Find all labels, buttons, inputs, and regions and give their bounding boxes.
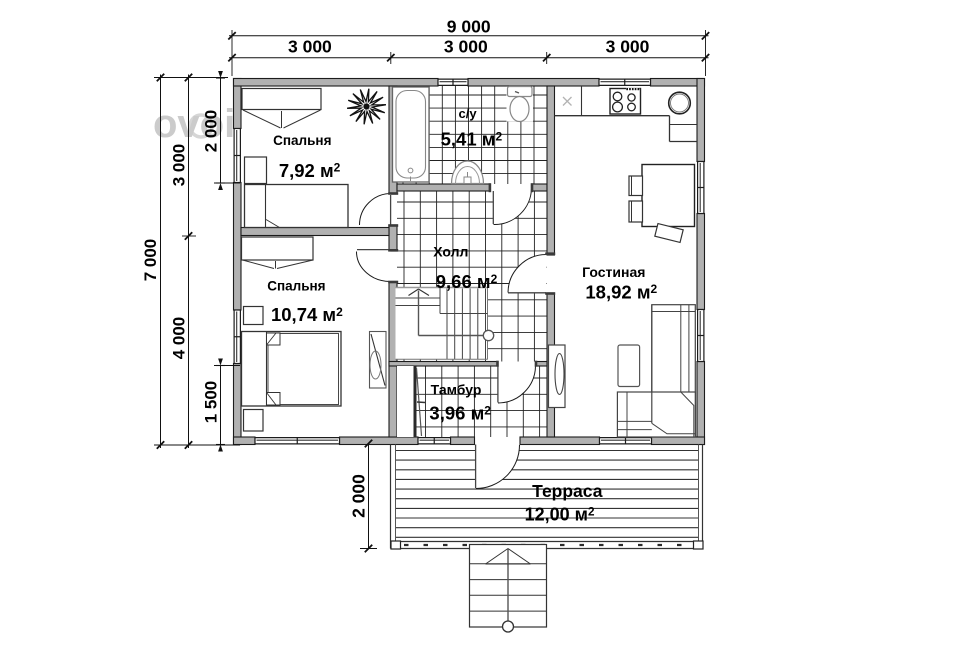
svg-text:12,00 м2: 12,00 м2	[525, 504, 595, 524]
svg-text:Терраса: Терраса	[532, 481, 603, 501]
svg-text:Спальня: Спальня	[267, 279, 325, 294]
svg-text:3 000: 3 000	[444, 37, 488, 57]
svg-text:4 000: 4 000	[169, 317, 188, 360]
svg-text:Спальня: Спальня	[273, 133, 331, 148]
svg-text:с/у: с/у	[459, 106, 478, 121]
svg-text:Тамбур: Тамбур	[431, 382, 482, 398]
svg-text:18,92 м2: 18,92 м2	[585, 281, 657, 302]
svg-text:7,92 м2: 7,92 м2	[279, 160, 341, 181]
svg-text:Гостиная: Гостиная	[582, 264, 645, 280]
svg-text:1 500: 1 500	[201, 381, 220, 424]
svg-text:7 000: 7 000	[141, 239, 160, 282]
svg-text:3 000: 3 000	[606, 37, 650, 57]
svg-text:9 000: 9 000	[447, 17, 491, 37]
svg-text:2 000: 2 000	[201, 110, 220, 153]
svg-text:9,66 м2: 9,66 м2	[436, 271, 498, 292]
svg-text:2 000: 2 000	[348, 474, 368, 518]
svg-text:5,41 м2: 5,41 м2	[441, 129, 503, 150]
svg-text:ovoi: ovoi	[153, 102, 235, 146]
svg-text:3 000: 3 000	[169, 144, 188, 187]
svg-text:10,74 м2: 10,74 м2	[271, 304, 343, 325]
svg-text:3 000: 3 000	[288, 37, 332, 57]
svg-text:Холл: Холл	[433, 244, 468, 260]
svg-text:3,96 м2: 3,96 м2	[429, 403, 491, 424]
